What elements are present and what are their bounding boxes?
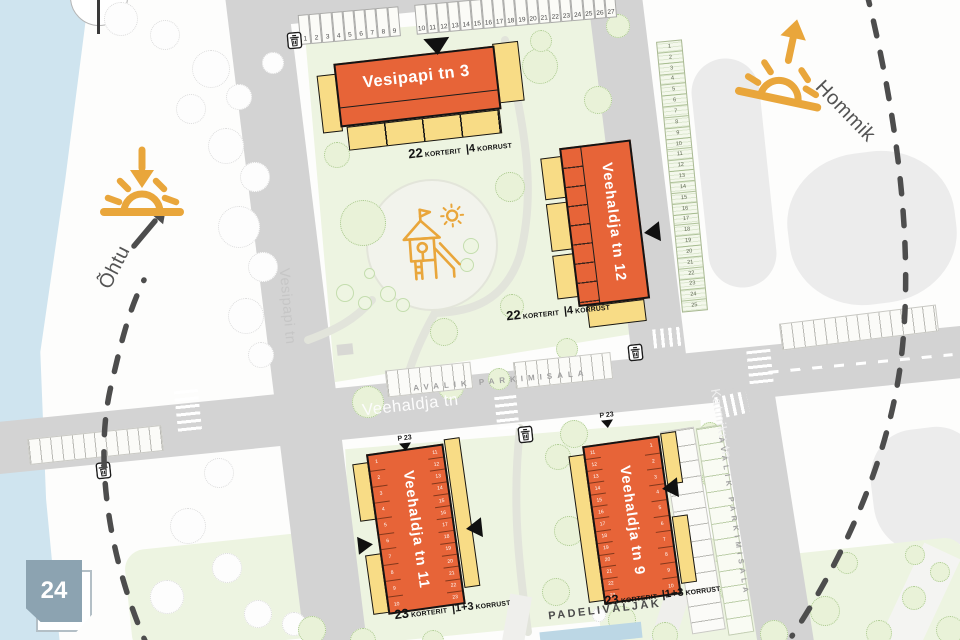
direction-arrow — [643, 221, 661, 243]
trash-icon — [286, 31, 302, 49]
playground-icon — [393, 202, 470, 285]
parking-p23-label: P 23 — [599, 411, 615, 428]
trash-icon — [627, 343, 644, 361]
page-number: 24 — [41, 577, 68, 605]
parking-space: 25 — [682, 300, 707, 312]
direction-arrow — [661, 477, 679, 499]
zebra-crossing — [494, 395, 520, 433]
sunset-icon — [100, 146, 184, 220]
parking-space: 9 — [387, 6, 401, 37]
direction-arrow — [465, 517, 483, 539]
zebra-crossing — [746, 349, 773, 385]
direction-arrow — [357, 535, 374, 554]
trash-icon — [517, 425, 534, 443]
parking-p23-label: P 23 — [397, 434, 413, 451]
zebra-crossing — [174, 389, 202, 433]
page-badge: 24 — [26, 560, 82, 622]
building-veehaldja-11: 12345678910 11121314151617181920212223 V… — [351, 439, 483, 621]
parking-space: 27 — [603, 0, 617, 18]
direction-arrow — [601, 419, 614, 428]
utility-pad — [336, 343, 353, 356]
site-plan: 1234567891011121314151617181920212223242… — [0, 0, 960, 640]
trash-icon — [95, 461, 112, 479]
direction-arrow — [423, 37, 450, 56]
zebra-crossing — [652, 326, 684, 348]
direction-arrow — [399, 442, 412, 451]
